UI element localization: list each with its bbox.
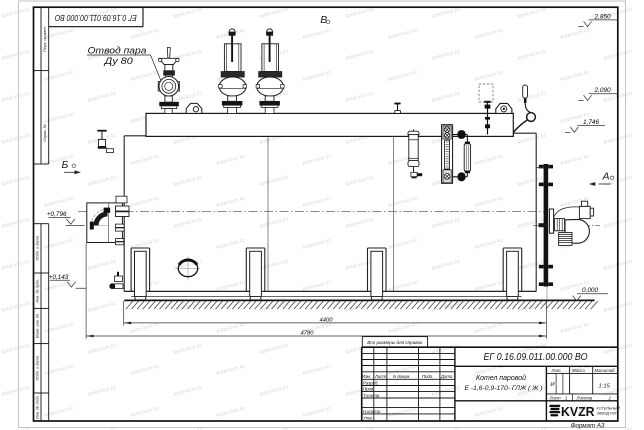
- svg-text:+0,796: +0,796: [47, 211, 67, 218]
- svg-text:Лист: Лист: [374, 374, 386, 379]
- svg-text:Справ. №: Справ. №: [42, 123, 47, 141]
- svg-text:Перв. примен.: Перв. примен.: [42, 26, 47, 52]
- svg-text:2,850: 2,850: [594, 13, 611, 20]
- svg-text:Разраб.: Разраб.: [363, 380, 379, 385]
- svg-text:0,000: 0,000: [582, 287, 598, 294]
- svg-text:Подп.: Подп.: [422, 374, 433, 379]
- svg-text:Подп. и дата: Подп. и дата: [35, 355, 40, 380]
- svg-text:4780: 4780: [301, 331, 315, 337]
- svg-text:Ду 80: Ду 80: [104, 56, 134, 67]
- svg-text:Лист: Лист: [549, 395, 561, 400]
- svg-text:Дата: Дата: [440, 374, 453, 379]
- svg-text:Масса: Масса: [572, 368, 585, 373]
- svg-text:Взам. инв. №: Взам. инв. №: [35, 313, 40, 338]
- svg-text:1:15: 1:15: [599, 384, 611, 390]
- svg-text:Масштаб: Масштаб: [595, 368, 616, 373]
- svg-text:ЕГ 0.16.09.011.00.000 ВО: ЕГ 0.16.09.011.00.000 ВО: [55, 13, 137, 22]
- svg-text:Все размеры для справок: Все размеры для справок: [367, 340, 423, 345]
- svg-text:Инв. № дубл.: Инв. № дубл.: [35, 279, 40, 303]
- svg-text:Е -1,6-0,9-170- ГЛЖ ( Ж ): Е -1,6-0,9-170- ГЛЖ ( Ж ): [465, 385, 543, 392]
- svg-text:Утв.: Утв.: [363, 415, 373, 420]
- svg-text:КОТЕЛЬНЫЙ: КОТЕЛЬНЫЙ: [597, 406, 621, 410]
- svg-text:ЕГ 0.16.09.011.00.000 ВО: ЕГ 0.16.09.011.00.000 ВО: [484, 352, 588, 363]
- svg-text:Листов: Листов: [576, 395, 593, 400]
- svg-text:А: А: [602, 170, 610, 182]
- svg-text:В: В: [320, 14, 327, 26]
- svg-text:Лит.: Лит.: [551, 368, 562, 373]
- svg-text:Пров.: Пров.: [363, 387, 374, 392]
- svg-text:1,746: 1,746: [583, 119, 599, 126]
- svg-text:N докум.: N докум.: [393, 374, 410, 379]
- svg-text:KVZR: KVZR: [561, 404, 595, 419]
- svg-text:Формат А3: Формат А3: [571, 423, 605, 430]
- svg-text:2,090: 2,090: [594, 87, 611, 94]
- svg-text:Котел паровой: Котел паровой: [476, 373, 526, 382]
- svg-text:4400: 4400: [320, 317, 334, 323]
- svg-text:Инв. № подл.: Инв. № подл.: [35, 395, 40, 419]
- svg-text:Изм.: Изм.: [362, 374, 371, 379]
- svg-text:Н.контр.: Н.контр.: [363, 409, 381, 414]
- svg-text:+0,143: +0,143: [49, 274, 69, 281]
- svg-text:Б: Б: [62, 159, 69, 171]
- svg-text:Т.контр.: Т.контр.: [363, 393, 380, 398]
- svg-text:ЗАВОД РЭП: ЗАВОД РЭП: [597, 411, 618, 415]
- svg-text:И: И: [551, 382, 555, 388]
- svg-text:Подп. и дата: Подп. и дата: [35, 235, 40, 260]
